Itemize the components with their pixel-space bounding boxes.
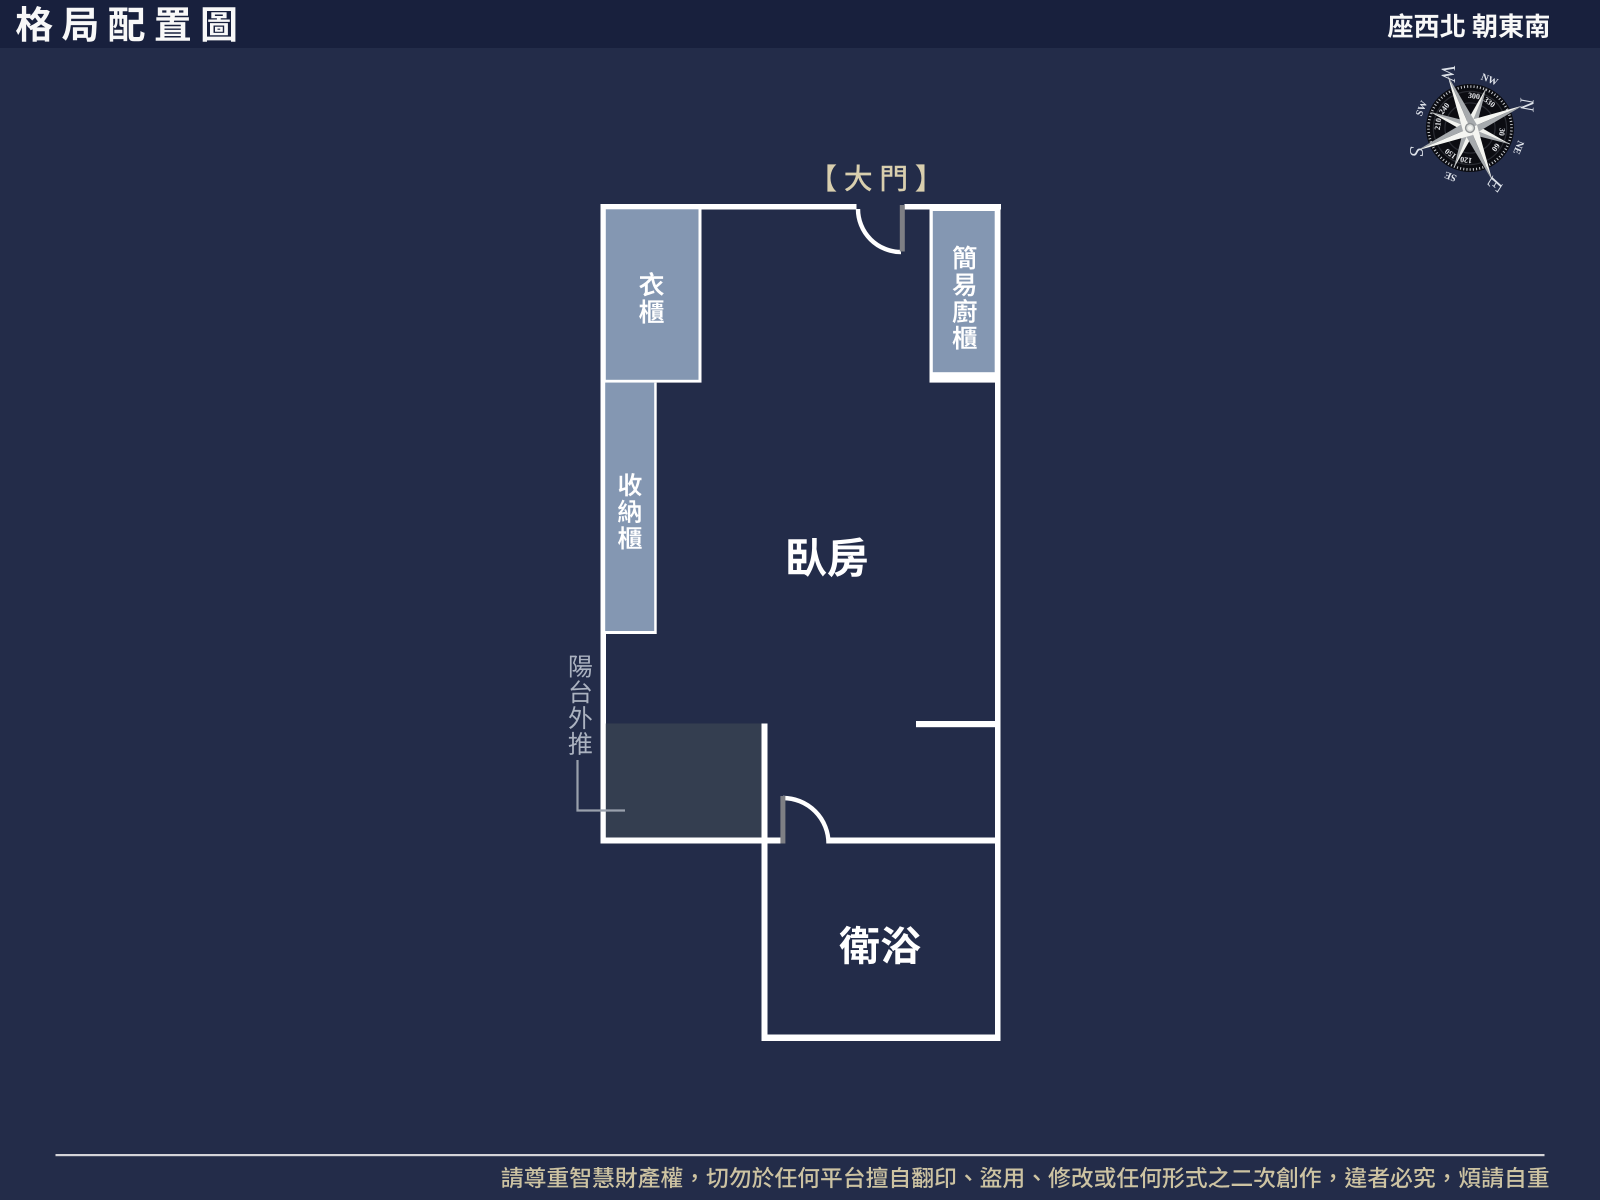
- svg-text:30: 30: [1497, 127, 1507, 136]
- svg-text:N: N: [1516, 97, 1538, 113]
- svg-text:210: 210: [1433, 118, 1443, 131]
- svg-text:120: 120: [1460, 155, 1473, 165]
- svg-text:W: W: [1437, 64, 1459, 83]
- svg-text:S: S: [1405, 146, 1427, 156]
- svg-text:300: 300: [1467, 91, 1480, 101]
